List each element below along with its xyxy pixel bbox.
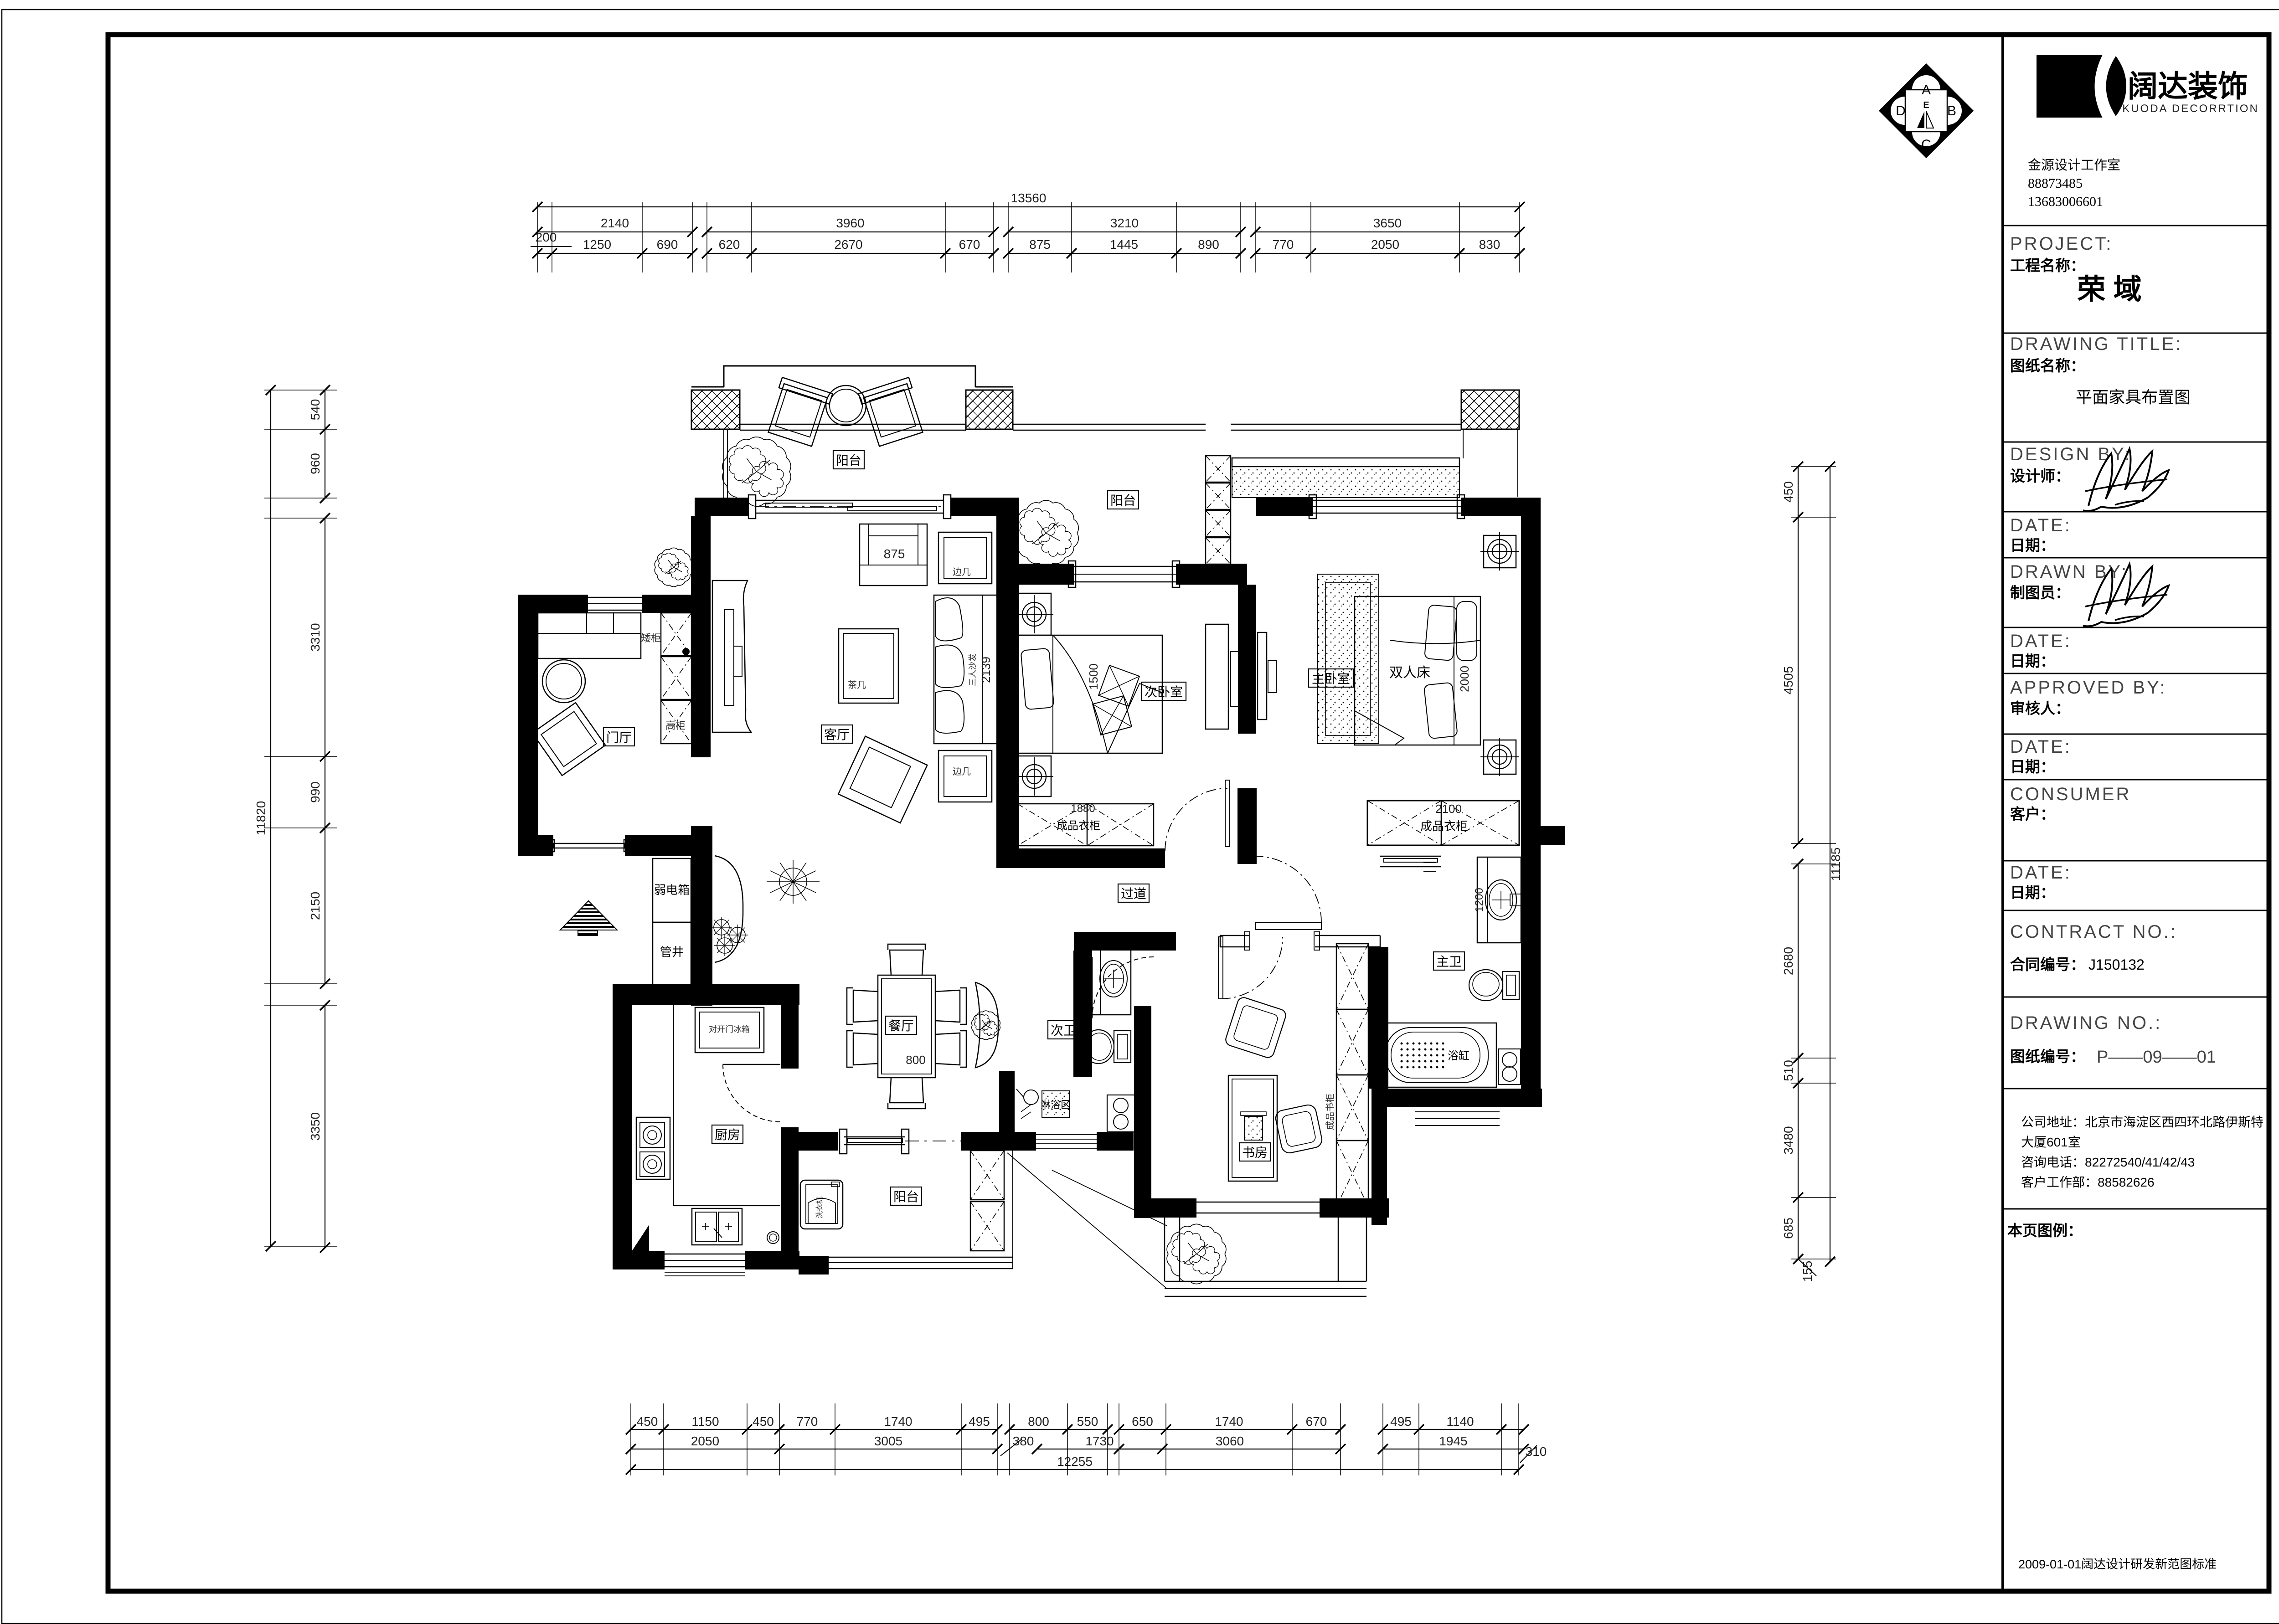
- svg-text:制图员：: 制图员：: [2010, 584, 2070, 601]
- svg-text:管井: 管井: [660, 945, 684, 959]
- svg-text:13560: 13560: [1011, 191, 1047, 205]
- svg-text:450: 450: [1781, 481, 1795, 503]
- svg-text:餐厅: 餐厅: [888, 1019, 914, 1033]
- svg-text:阳台: 阳台: [836, 453, 861, 468]
- svg-text:客厅: 客厅: [824, 728, 850, 742]
- svg-text:13683006601: 13683006601: [2028, 194, 2103, 209]
- svg-text:门厅: 门厅: [606, 730, 632, 745]
- svg-text:阔达装饰: 阔达装饰: [2128, 69, 2248, 103]
- svg-text:685: 685: [1781, 1218, 1795, 1239]
- svg-text:690: 690: [657, 237, 678, 252]
- svg-text:KUODA DECORRTION: KUODA DECORRTION: [2122, 103, 2259, 115]
- svg-text:540: 540: [308, 399, 322, 421]
- svg-text:495: 495: [1390, 1414, 1412, 1429]
- svg-text:工程名称：: 工程名称：: [2010, 257, 2085, 274]
- svg-text:800: 800: [1028, 1414, 1049, 1429]
- svg-text:成品衣柜: 成品衣柜: [1420, 819, 1468, 833]
- svg-text:大厦601室: 大厦601室: [2021, 1135, 2081, 1149]
- svg-text:450: 450: [637, 1414, 658, 1429]
- svg-text:日期：: 日期：: [2010, 758, 2055, 775]
- svg-text:960: 960: [308, 453, 322, 474]
- svg-text:浴缸: 浴缸: [1448, 1050, 1469, 1062]
- svg-text:茶几: 茶几: [848, 680, 866, 690]
- svg-text:书房: 书房: [1242, 1146, 1268, 1160]
- svg-text:DRAWING TITLE:: DRAWING TITLE:: [2010, 334, 2182, 354]
- svg-text:3960: 3960: [836, 216, 864, 230]
- svg-text:2100: 2100: [1435, 802, 1462, 816]
- svg-text:APPROVED BY:: APPROVED BY:: [2010, 678, 2167, 698]
- svg-text:2139: 2139: [979, 657, 993, 683]
- svg-text:荣 域: 荣 域: [2077, 274, 2141, 305]
- svg-text:日期：: 日期：: [2010, 653, 2055, 669]
- svg-text:矮柜: 矮柜: [641, 632, 661, 644]
- svg-text:88873485: 88873485: [2028, 176, 2083, 191]
- svg-text:2000: 2000: [1458, 666, 1471, 692]
- svg-text:155: 155: [1800, 1261, 1815, 1282]
- svg-text:2050: 2050: [691, 1434, 719, 1448]
- svg-text:200: 200: [536, 230, 557, 244]
- svg-text:495: 495: [969, 1414, 990, 1429]
- svg-text:边几: 边几: [953, 567, 971, 577]
- svg-text:图纸编号：: 图纸编号：: [2010, 1048, 2085, 1065]
- svg-text:金源设计工作室: 金源设计工作室: [2028, 158, 2120, 173]
- svg-text:670: 670: [959, 237, 980, 252]
- svg-text:成品衣柜: 成品衣柜: [1057, 820, 1100, 832]
- svg-text:550: 550: [1077, 1414, 1098, 1429]
- svg-text:咨询电话：82272540/41/42/43: 咨询电话：82272540/41/42/43: [2021, 1155, 2195, 1169]
- svg-text:本页图例：: 本页图例：: [2007, 1222, 2083, 1239]
- svg-text:DATE:: DATE:: [2010, 737, 2072, 757]
- svg-text:11820: 11820: [254, 801, 268, 836]
- svg-text:670: 670: [1306, 1414, 1327, 1429]
- svg-text:图纸名称：: 图纸名称：: [2010, 357, 2085, 374]
- svg-text:CONTRACT NO.:: CONTRACT NO.:: [2010, 922, 2177, 942]
- svg-text:890: 890: [1198, 237, 1219, 252]
- svg-text:2140: 2140: [601, 216, 629, 230]
- svg-text:J150132: J150132: [2088, 956, 2145, 973]
- svg-text:厨房: 厨房: [715, 1128, 740, 1142]
- svg-text:DRAWN BY:: DRAWN BY:: [2010, 562, 2128, 582]
- svg-text:1500: 1500: [1087, 663, 1100, 690]
- svg-text:B: B: [1947, 103, 1956, 118]
- svg-text:800: 800: [906, 1053, 925, 1067]
- svg-text:阳台: 阳台: [1110, 493, 1136, 508]
- svg-text:设计师：: 设计师：: [2010, 468, 2070, 484]
- svg-text:洗衣机: 洗衣机: [815, 1197, 824, 1218]
- svg-text:A: A: [1922, 82, 1931, 98]
- svg-text:1880: 1880: [1071, 802, 1095, 815]
- svg-text:12255: 12255: [1057, 1454, 1093, 1469]
- svg-text:3005: 3005: [874, 1434, 902, 1448]
- svg-text:客户：: 客户：: [2010, 806, 2055, 822]
- svg-text:边几: 边几: [953, 766, 971, 777]
- svg-text:平面家具布置图: 平面家具布置图: [2076, 388, 2191, 406]
- svg-text:高柜: 高柜: [665, 720, 686, 731]
- svg-text:审核人：: 审核人：: [2010, 700, 2070, 717]
- svg-text:公司地址：北京市海淀区西四环北路伊斯特: 公司地址：北京市海淀区西四环北路伊斯特: [2021, 1115, 2264, 1129]
- svg-text:客户工作部：88582626: 客户工作部：88582626: [2021, 1175, 2155, 1189]
- svg-text:DESIGN BY:: DESIGN BY:: [2010, 444, 2132, 464]
- svg-text:DATE:: DATE:: [2010, 863, 2072, 883]
- svg-text:1740: 1740: [1215, 1414, 1243, 1429]
- svg-text:次卧室: 次卧室: [1145, 685, 1183, 699]
- svg-text:4505: 4505: [1781, 666, 1795, 694]
- svg-text:合同编号：: 合同编号：: [2010, 956, 2085, 973]
- svg-text:1945: 1945: [1439, 1434, 1467, 1448]
- svg-text:DATE:: DATE:: [2010, 631, 2072, 651]
- svg-text:2670: 2670: [834, 237, 862, 252]
- svg-text:1250: 1250: [583, 237, 611, 252]
- svg-text:双人床: 双人床: [1389, 665, 1430, 680]
- svg-text:770: 770: [797, 1414, 818, 1429]
- svg-text:淋浴区: 淋浴区: [1041, 1099, 1071, 1110]
- svg-text:过道: 过道: [1121, 887, 1146, 901]
- svg-text:E: E: [1923, 100, 1929, 110]
- svg-text:875: 875: [884, 547, 905, 561]
- svg-text:DATE:: DATE:: [2010, 515, 2072, 535]
- svg-text:3480: 3480: [1781, 1126, 1795, 1154]
- svg-text:次卫: 次卫: [1051, 1023, 1076, 1038]
- svg-text:830: 830: [1479, 237, 1500, 252]
- svg-text:3060: 3060: [1216, 1434, 1244, 1448]
- svg-text:770: 770: [1273, 237, 1294, 252]
- svg-text:日期：: 日期：: [2010, 537, 2055, 554]
- svg-text:主卧室: 主卧室: [1312, 672, 1350, 686]
- svg-text:C: C: [1921, 137, 1931, 152]
- svg-text:PROJECT:: PROJECT:: [2010, 234, 2113, 254]
- svg-text:1200: 1200: [1473, 888, 1485, 912]
- svg-text:3650: 3650: [1373, 216, 1402, 230]
- svg-text:P——09——01: P——09——01: [2097, 1048, 2216, 1067]
- svg-text:1140: 1140: [1446, 1414, 1474, 1429]
- svg-text:日期：: 日期：: [2010, 884, 2055, 901]
- svg-text:2150: 2150: [308, 892, 322, 920]
- svg-text:3310: 3310: [308, 623, 322, 651]
- svg-text:成品书柜: 成品书柜: [1325, 1094, 1335, 1130]
- svg-text:650: 650: [1132, 1414, 1153, 1429]
- svg-text:2680: 2680: [1781, 947, 1795, 975]
- svg-text:1150: 1150: [691, 1414, 719, 1429]
- svg-text:2050: 2050: [1371, 237, 1399, 252]
- svg-text:450: 450: [753, 1414, 774, 1429]
- svg-text:三人沙发: 三人沙发: [968, 653, 977, 686]
- svg-text:弱电箱: 弱电箱: [654, 883, 690, 897]
- svg-text:DRAWING NO.:: DRAWING NO.:: [2010, 1013, 2162, 1033]
- svg-text:CONSUMER: CONSUMER: [2010, 784, 2131, 804]
- svg-text:990: 990: [308, 781, 322, 803]
- svg-text:3210: 3210: [1110, 216, 1139, 230]
- svg-text:D: D: [1896, 103, 1906, 118]
- svg-text:875: 875: [1029, 237, 1051, 252]
- svg-text:主卫: 主卫: [1436, 955, 1462, 969]
- svg-text:1740: 1740: [884, 1414, 912, 1429]
- svg-text:620: 620: [719, 237, 740, 252]
- svg-text:对开门冰箱: 对开门冰箱: [709, 1025, 750, 1034]
- svg-text:1730: 1730: [1085, 1434, 1114, 1448]
- svg-text:阳台: 阳台: [893, 1190, 919, 1204]
- svg-text:2009-01-01阔达设计研发新范图标准: 2009-01-01阔达设计研发新范图标准: [2018, 1557, 2217, 1571]
- svg-text:380: 380: [1013, 1434, 1034, 1448]
- svg-text:3350: 3350: [308, 1112, 322, 1141]
- svg-text:1445: 1445: [1110, 237, 1138, 252]
